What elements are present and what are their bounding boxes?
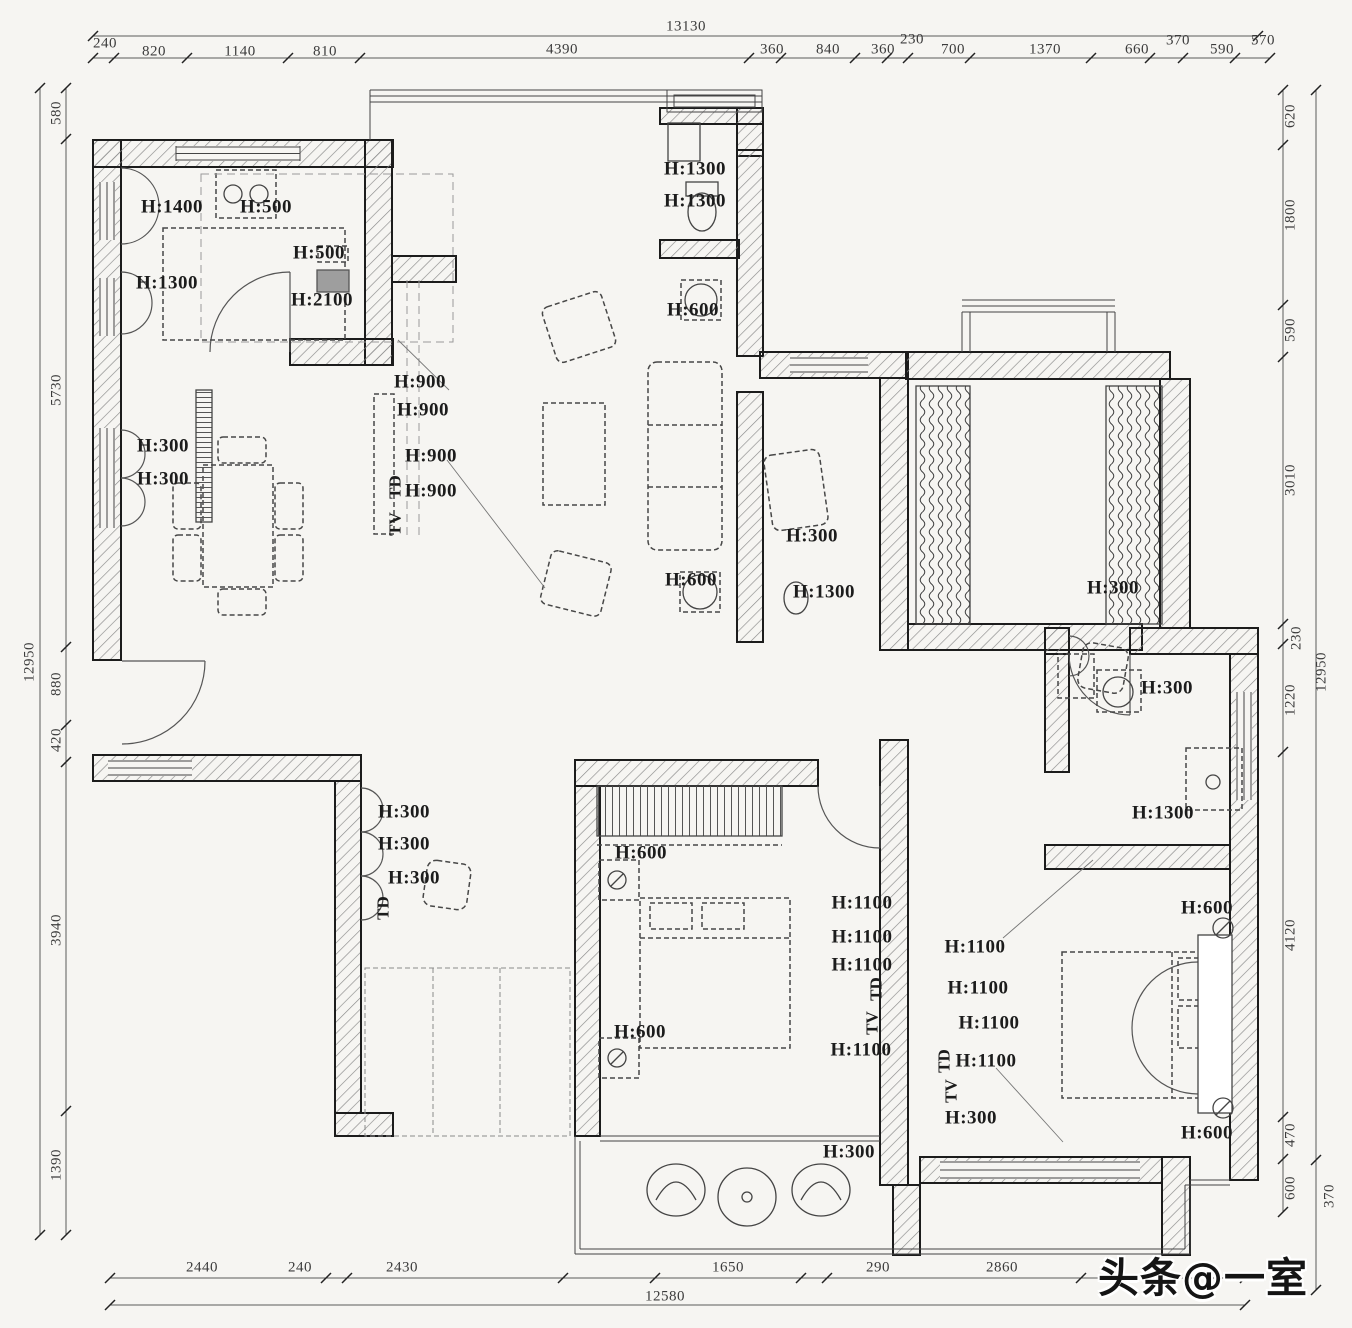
height-label: H:300 [137,470,189,489]
code-label: TV [387,512,404,536]
height-label: H:600 [614,1023,666,1042]
dim-label: 360 [871,43,895,58]
height-label: H:300 [945,1109,997,1128]
height-label: H:1300 [1132,804,1194,823]
height-label: H:300 [388,869,440,888]
dim-label: 1390 [50,1149,65,1181]
dim-label: 590 [1284,318,1299,342]
height-label: H:600 [665,571,717,590]
height-label: H:1300 [664,160,726,179]
height-label: H:900 [405,447,457,466]
dim-label: 600 [1284,1176,1299,1200]
height-label: H:1100 [831,956,892,975]
code-label: TD [936,1049,953,1073]
height-label: H:300 [137,437,189,456]
code-label: TD [375,896,392,920]
dim-label: 1140 [224,45,255,60]
dim-label: 420 [50,728,65,752]
dim-label: 1800 [1284,199,1299,231]
dim-label: 620 [1284,104,1299,128]
height-label: H:1300 [136,274,198,293]
dim-label: 820 [142,45,166,60]
dim-label: 240 [93,37,117,52]
height-label: H:900 [394,373,446,392]
dim-label: 290 [866,1261,890,1276]
height-label: H:900 [397,401,449,420]
height-label: H:600 [615,844,667,863]
dim-label: 4390 [546,43,578,58]
dim-total-label: 12580 [645,1290,685,1305]
height-label: H:300 [1141,679,1193,698]
floorplan-page: 1313024082011408104390360840360230700137… [0,0,1352,1328]
dim-label: 570 [1251,34,1275,49]
dim-label: 700 [941,43,965,58]
dim-label: 2440 [186,1261,218,1276]
dim-total-label: 12950 [1315,652,1330,692]
height-label: H:1300 [793,583,855,602]
dim-label: 4120 [1284,919,1299,951]
code-label: TD [387,475,404,499]
height-label: H:500 [293,244,345,263]
watermark: 头条@一室 [1098,1244,1348,1304]
dim-total-label: 13130 [666,20,706,35]
dim-label: 470 [1284,1123,1299,1147]
height-label: H:1100 [944,938,1005,957]
code-label: TD [868,977,885,1001]
height-label: H:1100 [955,1052,1016,1071]
height-label: H:1100 [831,894,892,913]
dim-label: 370 [1323,1184,1338,1208]
height-label: H:600 [1181,899,1233,918]
dim-label: 1220 [1284,684,1299,716]
dim-label: 590 [1210,43,1234,58]
code-label: TV [864,1011,881,1035]
height-label: H:300 [378,803,430,822]
height-label: H:300 [823,1143,875,1162]
dim-label: 5730 [50,374,65,406]
dim-label: 2430 [386,1261,418,1276]
dim-label: 660 [1125,43,1149,58]
dim-label: 230 [900,33,924,48]
dim-label: 580 [50,101,65,125]
height-label: H:1300 [664,192,726,211]
height-label: H:300 [378,835,430,854]
plan-labels-layer: 1313024082011408104390360840360230700137… [0,0,1352,1328]
dim-label: 370 [1166,34,1190,49]
height-label: H:1100 [831,928,892,947]
dim-total-label: 12950 [23,642,38,682]
dim-label: 240 [288,1261,312,1276]
dim-label: 1370 [1029,43,1061,58]
height-label: H:1400 [141,198,203,217]
dim-label: 3010 [1284,464,1299,496]
height-label: H:300 [1087,579,1139,598]
height-label: H:900 [405,482,457,501]
height-label: H:1100 [947,979,1008,998]
dim-label: 2860 [986,1261,1018,1276]
dim-label: 230 [1290,626,1305,650]
height-label: H:300 [786,527,838,546]
dim-label: 360 [760,43,784,58]
dim-label: 840 [816,43,840,58]
dim-label: 3940 [50,914,65,946]
height-label: H:600 [1181,1124,1233,1143]
dim-label: 1650 [712,1261,744,1276]
code-label: TV [943,1079,960,1103]
dim-label: 810 [313,45,337,60]
height-label: H:500 [240,198,292,217]
dim-label: 880 [50,672,65,696]
height-label: H:1100 [958,1014,1019,1033]
height-label: H:2100 [291,291,353,310]
height-label: H:1100 [830,1041,891,1060]
height-label: H:600 [667,301,719,320]
